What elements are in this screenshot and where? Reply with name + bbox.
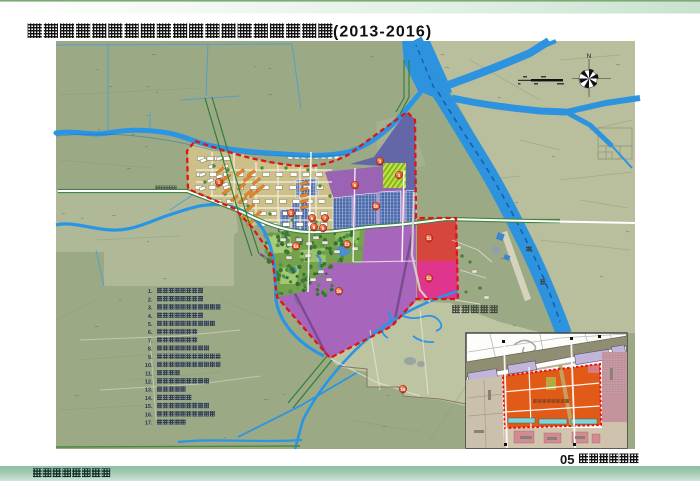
svg-text:16: 16 [400, 387, 406, 392]
svg-text:N: N [587, 53, 592, 60]
svg-text:16.: 16. [145, 412, 153, 418]
svg-text:13: 13 [344, 242, 350, 247]
svg-text:3.: 3. [148, 306, 153, 312]
svg-text:3: 3 [379, 159, 382, 164]
svg-text:2.: 2. [148, 297, 153, 303]
svg-text:7.: 7. [148, 338, 153, 344]
svg-text:14.: 14. [145, 396, 153, 402]
svg-text:1: 1 [218, 180, 221, 185]
svg-text:12.: 12. [145, 380, 153, 386]
svg-text:15: 15 [336, 289, 342, 294]
svg-text:9: 9 [322, 226, 325, 231]
svg-text:4.: 4. [148, 314, 153, 320]
svg-text:(2013-2016): (2013-2016) [333, 24, 432, 41]
svg-text:10: 10 [373, 204, 379, 209]
svg-text:17.: 17. [145, 421, 153, 427]
svg-text:15.: 15. [145, 404, 153, 410]
svg-text:6.: 6. [148, 330, 153, 336]
svg-text:6: 6 [311, 216, 314, 221]
svg-text:8.: 8. [148, 347, 153, 353]
svg-text:05: 05 [560, 452, 574, 467]
svg-text:4: 4 [398, 173, 401, 178]
svg-text:12: 12 [426, 276, 432, 281]
svg-text:5.: 5. [148, 322, 153, 328]
svg-text:9.: 9. [148, 355, 153, 361]
svg-text:11: 11 [427, 236, 432, 241]
svg-text:13.: 13. [145, 388, 153, 394]
svg-text:2: 2 [290, 211, 293, 216]
svg-text:11.: 11. [145, 371, 153, 377]
svg-text:7: 7 [324, 216, 327, 221]
svg-text:14: 14 [293, 244, 299, 249]
svg-text:1.: 1. [148, 289, 153, 295]
svg-text:8: 8 [313, 225, 316, 230]
svg-text:10.: 10. [145, 363, 153, 369]
svg-text:5: 5 [354, 183, 357, 188]
